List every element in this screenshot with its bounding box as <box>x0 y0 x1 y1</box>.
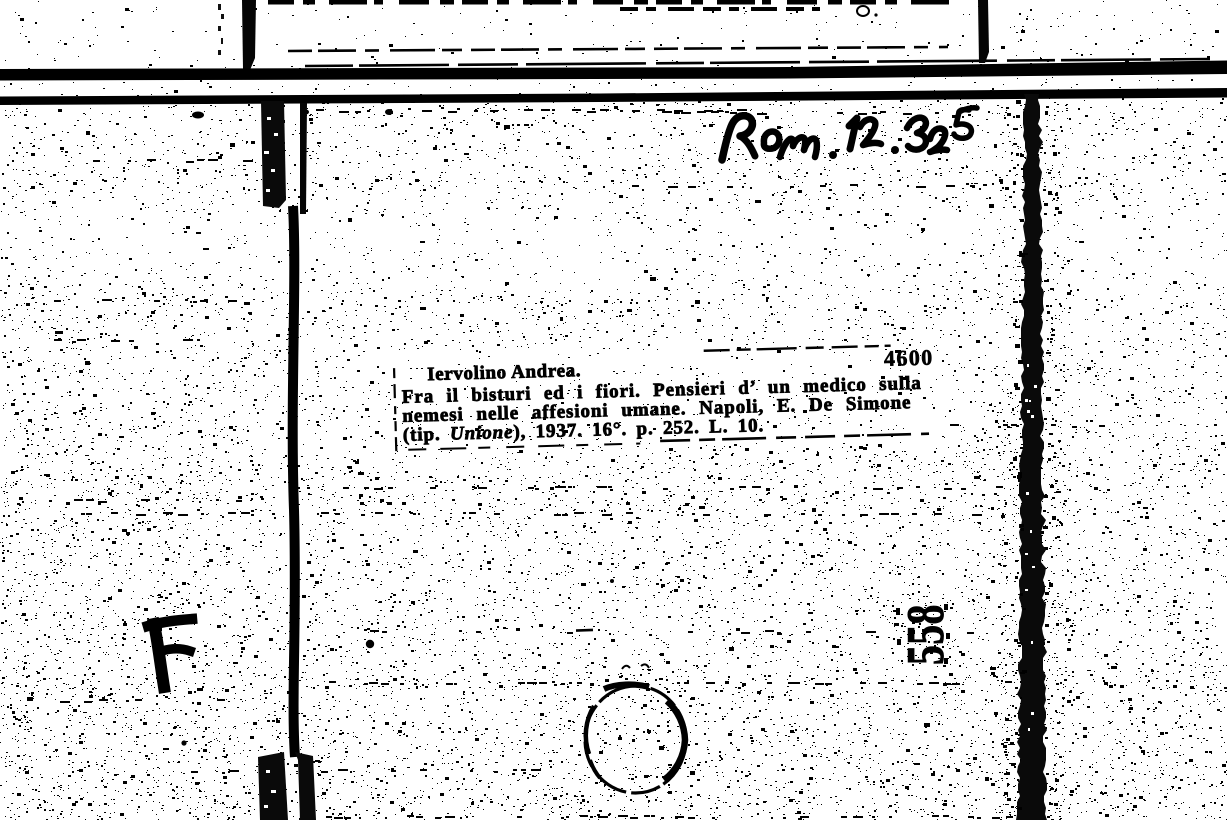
svg-text:4600: 4600 <box>884 345 934 371</box>
svg-text:Iervolino Andrea.: Iervolino Andrea. <box>427 360 581 385</box>
